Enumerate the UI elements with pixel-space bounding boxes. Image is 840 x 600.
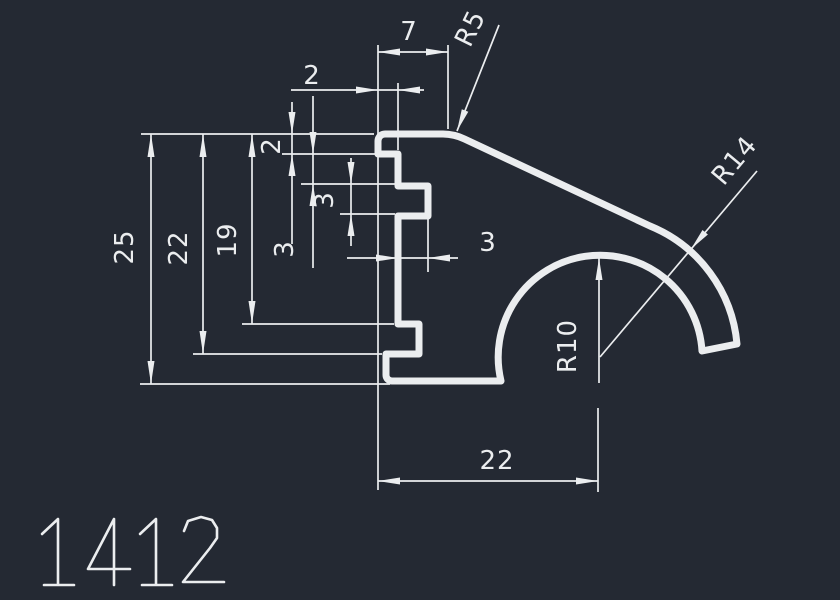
arrow-22-top <box>200 134 207 157</box>
arrow-r5 <box>457 109 468 131</box>
arrow-19-bottom <box>249 301 256 324</box>
technical-drawing: 25 22 19 2 3 3 7 2 3 22 R10 R14 R5 <box>0 0 840 600</box>
arrow-25-bottom <box>148 361 155 384</box>
label-height-to-lower-tab: 19 <box>213 222 243 257</box>
label-notch-depth: 3 <box>479 228 497 258</box>
drawing-canvas: 25 22 19 2 3 3 7 2 3 22 R10 R14 R5 <box>0 0 840 600</box>
part-number-digit-4 <box>88 519 130 585</box>
part-number <box>42 517 224 585</box>
arrow-notchh-down <box>348 214 355 236</box>
label-tab-to-notch: 3 <box>310 191 340 209</box>
label-top-corner-radius: R5 <box>449 5 492 51</box>
arrow-t2n-up <box>310 132 317 154</box>
arrow-22-bottom <box>200 331 207 354</box>
arrow-7-left <box>378 49 400 56</box>
arrow-tabh-up <box>289 112 296 134</box>
arrow-25-top <box>148 134 155 157</box>
label-arch-radius: R10 <box>553 319 583 373</box>
label-top-tab-height: 2 <box>257 137 287 155</box>
dimension-labels: 25 22 19 2 3 3 7 2 3 22 R10 R14 R5 <box>110 5 764 476</box>
arrow-r14 <box>691 230 708 249</box>
part-number-digit-1a <box>42 519 74 585</box>
label-overall-height: 25 <box>110 229 140 264</box>
label-height-to-step: 22 <box>164 230 194 265</box>
arrow-7-right <box>426 49 448 56</box>
label-bottom-width: 22 <box>479 446 514 476</box>
arrow-nd-right <box>428 255 450 262</box>
arrow-b22-left <box>378 478 400 485</box>
arrow-2-left <box>356 87 378 94</box>
part-number-digit-2 <box>183 517 224 582</box>
arrow-19-top <box>249 134 256 157</box>
label-notch-height: 3 <box>270 240 300 258</box>
part-number-digit-1b <box>140 519 172 585</box>
arrow-b22-right <box>576 478 598 485</box>
arrow-notchh-up <box>348 162 355 184</box>
label-outer-hook-radius: R14 <box>706 130 764 191</box>
arrow-r10 <box>596 258 603 280</box>
label-top-tab-width: 7 <box>400 17 418 47</box>
arrow-tabh-down <box>289 154 296 176</box>
arrow-2-right <box>398 87 420 94</box>
label-top-tab-depth: 2 <box>303 61 321 91</box>
